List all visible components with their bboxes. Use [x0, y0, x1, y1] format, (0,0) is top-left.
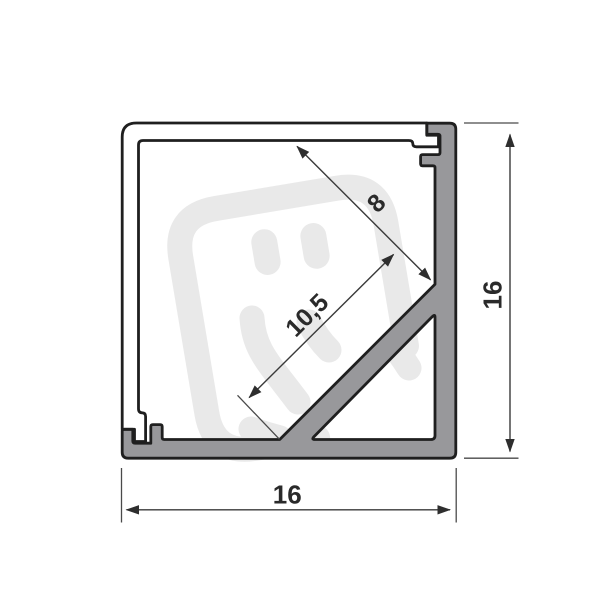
svg-text:16: 16 — [273, 480, 302, 510]
svg-text:16: 16 — [478, 281, 508, 310]
